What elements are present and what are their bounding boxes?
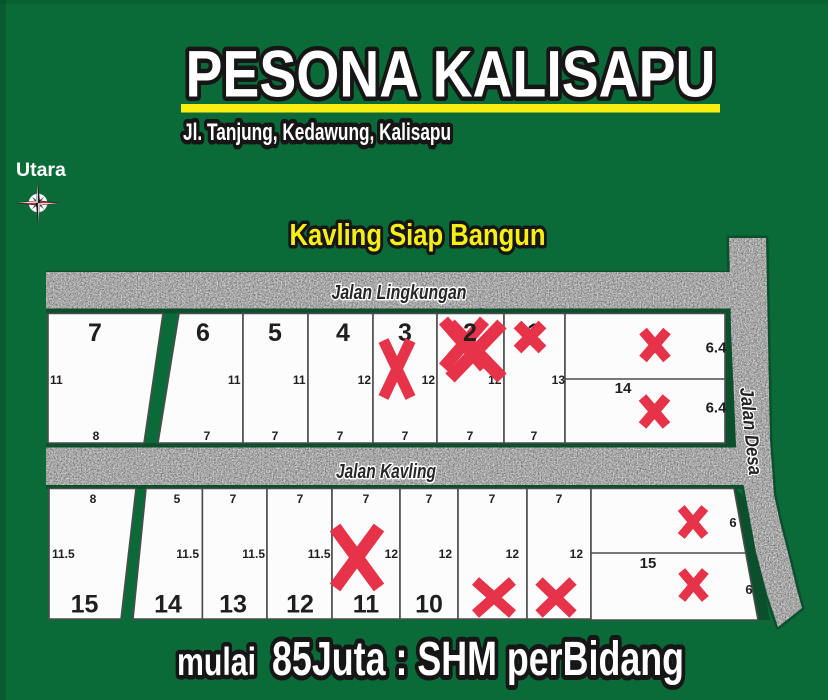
svg-text:5: 5 [268,319,282,347]
svg-text:11.5: 11.5 [308,547,331,561]
svg-text:7: 7 [272,429,279,443]
svg-text:12: 12 [439,547,453,561]
svg-text:6: 6 [196,319,210,347]
svg-text:Jalan Lingkungan: Jalan Lingkungan [332,282,467,304]
svg-text:15: 15 [71,591,99,619]
svg-text:11.5: 11.5 [52,547,75,561]
svg-text:10: 10 [415,591,443,619]
svg-text:15: 15 [640,555,657,572]
svg-text:6: 6 [729,515,736,530]
svg-text:12: 12 [506,547,520,561]
svg-text:6.4: 6.4 [706,400,728,417]
svg-text:7: 7 [337,429,344,443]
svg-text:7: 7 [363,492,370,506]
svg-text:7: 7 [88,319,102,347]
svg-text:Kavling Siap Bangun: Kavling Siap Bangun [290,217,546,252]
svg-text:12: 12 [422,373,436,387]
svg-text:5: 5 [174,492,181,506]
svg-text:13: 13 [552,373,566,387]
svg-text:12: 12 [358,373,372,387]
svg-text:7: 7 [426,492,433,506]
svg-text:7: 7 [467,429,474,443]
svg-text:8: 8 [93,429,100,443]
svg-text:11: 11 [353,591,380,619]
svg-text:7: 7 [402,429,409,443]
svg-text:6.4: 6.4 [706,340,728,357]
svg-text:11.5: 11.5 [176,547,199,561]
svg-text:4: 4 [336,319,350,347]
svg-text:7: 7 [230,492,237,506]
svg-text:85Juta : SHM perBidang: 85Juta : SHM perBidang [272,633,684,686]
svg-text:11.5: 11.5 [242,547,265,561]
svg-text:12: 12 [385,547,399,561]
svg-text:11: 11 [228,373,241,387]
svg-text:7: 7 [204,429,211,443]
svg-text:7: 7 [297,492,304,506]
svg-text:Jl. Tanjung, Kedawung, Kalisap: Jl. Tanjung, Kedawung, Kalisapu [183,119,451,146]
svg-text:2: 2 [463,319,477,347]
svg-text:7: 7 [556,492,563,506]
svg-text:12: 12 [570,547,584,561]
svg-text:Utara: Utara [16,159,66,181]
svg-text:11: 11 [50,373,63,387]
svg-text:12: 12 [286,591,314,619]
svg-text:Jalan Kavling: Jalan Kavling [336,461,436,483]
svg-text:14: 14 [154,591,182,619]
svg-text:8: 8 [90,492,97,506]
svg-text:11: 11 [293,373,306,387]
svg-text:14: 14 [615,380,632,397]
svg-text:PESONA KALISAPU: PESONA KALISAPU [186,37,716,111]
svg-text:6: 6 [745,582,752,597]
svg-text:mulai: mulai [177,641,256,684]
svg-text:7: 7 [489,492,496,506]
svg-text:7: 7 [531,429,538,443]
svg-text:13: 13 [219,591,247,619]
